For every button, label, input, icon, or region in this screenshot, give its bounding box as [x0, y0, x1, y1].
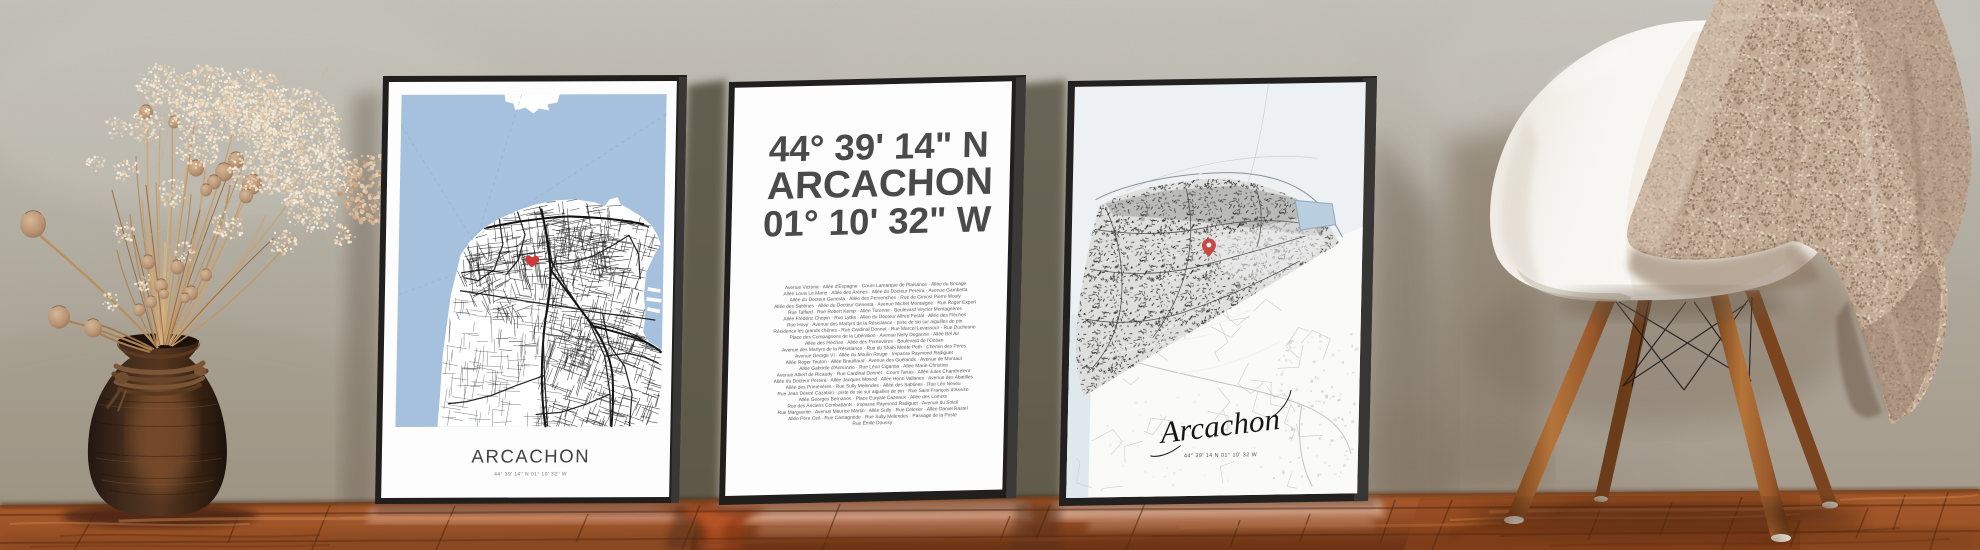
svg-text:ARCACHON: ARCACHON — [471, 445, 590, 466]
svg-text:44° 39' 14 N 01° 10' 32 W: 44° 39' 14 N 01° 10' 32 W — [1184, 452, 1258, 459]
svg-text:01° 10' 32" W: 01° 10' 32" W — [763, 198, 993, 244]
svg-text:44° 39' 14'' N 01° 10' 32'' W: 44° 39' 14'' N 01° 10' 32'' W — [494, 471, 567, 477]
